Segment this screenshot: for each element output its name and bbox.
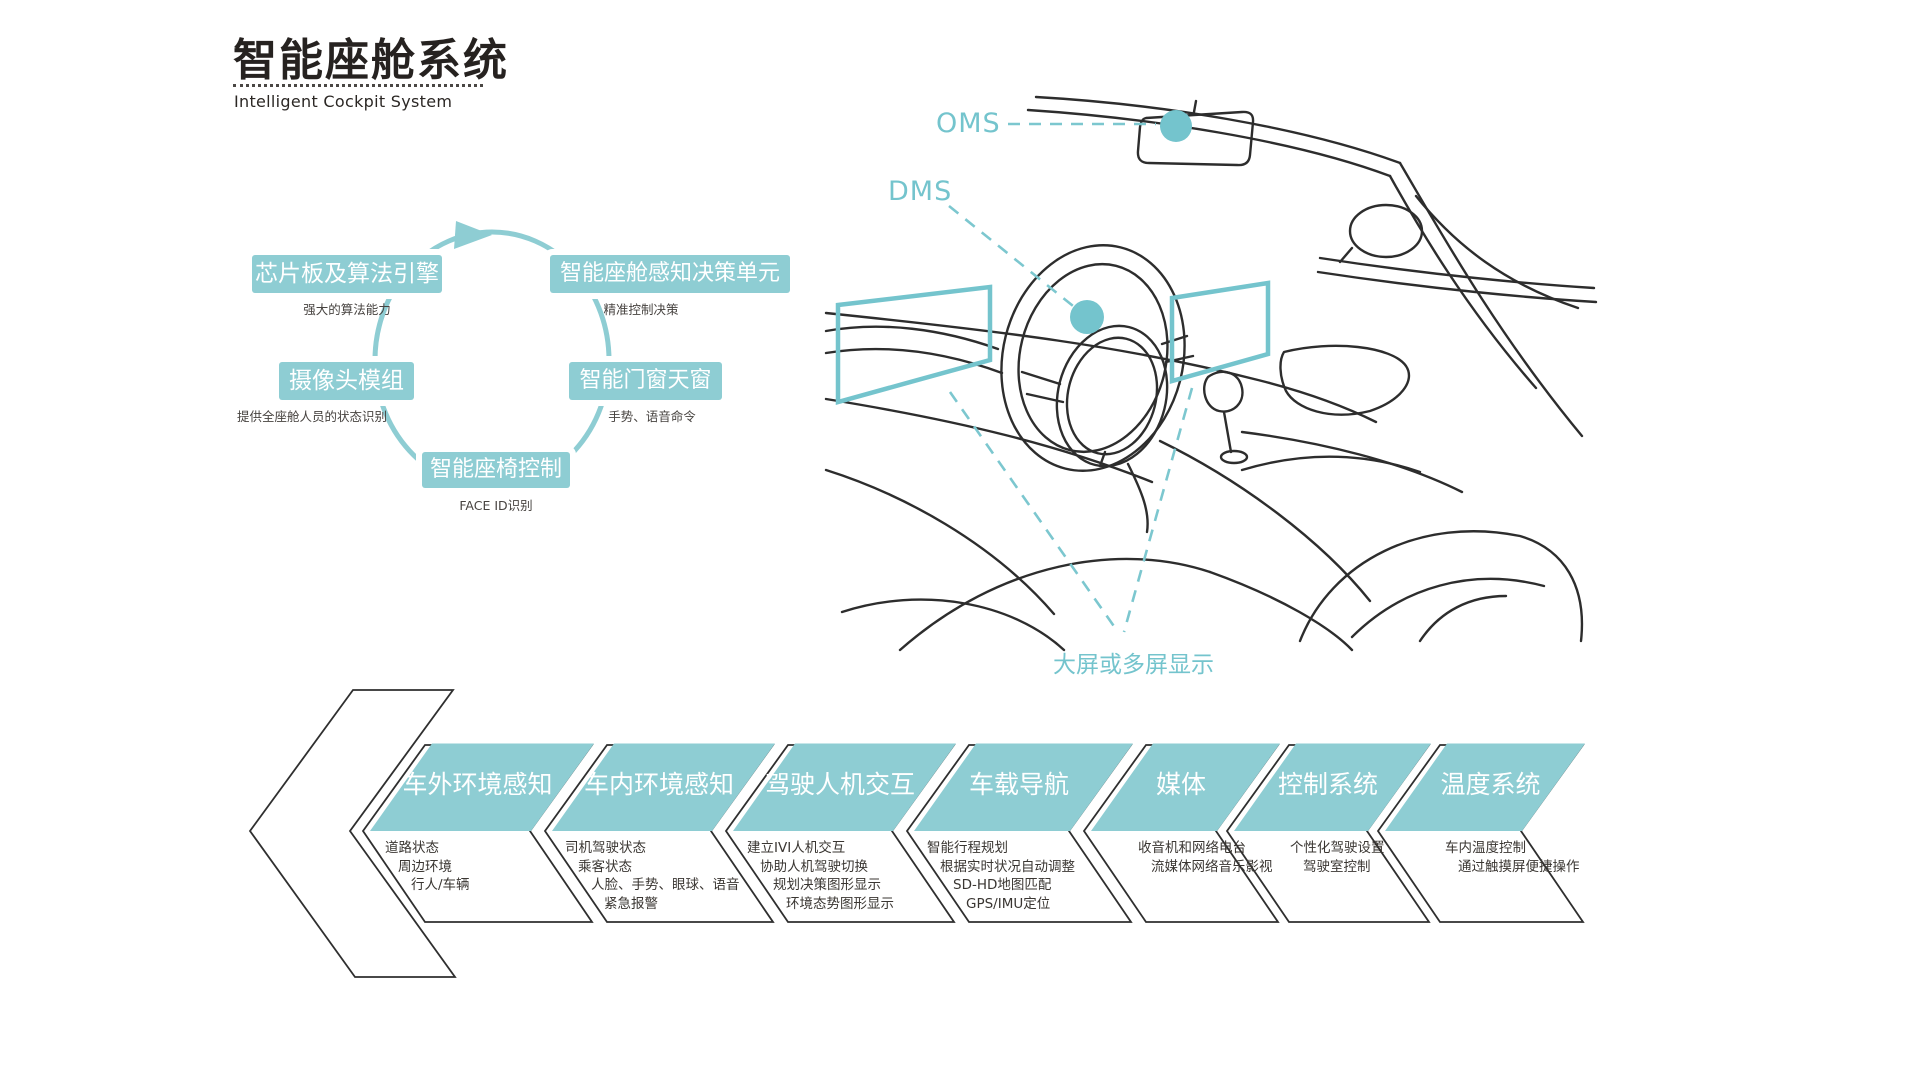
cycle-node-camera-module: 摄像头模组	[279, 362, 414, 400]
cycle-node-decision-unit: 智能座舱感知决策单元	[550, 255, 790, 293]
flow-step-title-media: 媒体	[1115, 769, 1247, 801]
flow-item: 驾驶室控制	[1290, 858, 1385, 877]
flow-item: 人脸、手势、眼球、语音	[565, 876, 740, 895]
flow-item: 道路状态	[385, 839, 470, 858]
flow-step-items-exterior: 道路状态 周边环境 行人/车辆	[385, 839, 470, 895]
flow-item: 司机驾驶状态	[565, 839, 740, 858]
flow-item: 乘客状态	[565, 858, 740, 877]
gear-shifter	[1204, 372, 1247, 463]
screen-outline-center	[1172, 283, 1268, 381]
flow-item: 紧急报警	[565, 895, 740, 914]
flow-step-items-navigation: 智能行程规划 根据实时状况自动调整 SD-HD地图匹配 GPS/IMU定位	[927, 839, 1075, 913]
page-subtitle-en: Intelligent Cockpit System	[234, 92, 452, 111]
flow-step-items-media: 收音机和网络电台 流媒体网络音乐影视	[1138, 839, 1273, 876]
cycle-node-seat-control-note: FACE ID识别	[459, 495, 532, 514]
flow-step-title-interior: 车内环境感知	[576, 769, 742, 801]
flow-step-title-hmi: 驾驶人机交互	[757, 769, 923, 801]
flow-item: 建立IVI人机交互	[747, 839, 894, 858]
page-title: 智能座舱系统	[233, 24, 509, 88]
cycle-node-decision-unit-note: 精准控制决策	[603, 299, 678, 318]
flow-item: 环境态势图形显示	[747, 895, 894, 914]
flow-item: SD-HD地图匹配	[927, 876, 1075, 895]
flow-item: 通过触摸屏便捷操作	[1445, 858, 1580, 877]
screen-outline-cluster	[838, 287, 990, 402]
flow-item: GPS/IMU定位	[927, 895, 1075, 914]
cycle-node-smart-windows-note: 手势、语音命令	[608, 406, 696, 425]
flow-item: 根据实时状况自动调整	[927, 858, 1075, 877]
dms-dot	[1070, 300, 1104, 334]
cycle-node-chip-engine: 芯片板及算法引擎	[252, 255, 442, 293]
display-leader-line-left	[950, 392, 1118, 632]
flow-item: 智能行程规划	[927, 839, 1075, 858]
oms-dot	[1160, 110, 1192, 142]
flow-step-title-navigation: 车载导航	[938, 769, 1100, 801]
flow-item: 收音机和网络电台	[1138, 839, 1273, 858]
flow-step-title-exterior: 车外环境感知	[394, 769, 561, 801]
flow-step-title-control: 控制系统	[1258, 769, 1398, 801]
flow-item: 流媒体网络音乐影视	[1138, 858, 1273, 877]
flow-step-items-temperature: 车内温度控制 通过触摸屏便捷操作	[1445, 839, 1580, 876]
oms-label: OMS	[936, 108, 1001, 139]
flow-item: 行人/车辆	[385, 876, 470, 895]
flow-chevrons	[250, 690, 1583, 977]
cycle-arrow-icon	[454, 221, 492, 249]
flow-item: 个性化驾驶设置	[1290, 839, 1385, 858]
dms-label: DMS	[888, 176, 952, 207]
flow-step-items-interior: 司机驾驶状态 乘客状态 人脸、手势、眼球、语音 紧急报警	[565, 839, 740, 913]
cycle-node-smart-windows: 智能门窗天窗	[569, 362, 722, 400]
cycle-node-camera-module-note: 提供全座舱人员的状态识别	[237, 406, 387, 425]
cycle-node-chip-engine-note: 强大的算法能力	[303, 299, 391, 318]
cycle-node-seat-control: 智能座椅控制	[422, 452, 570, 488]
flow-item: 规划决策图形显示	[747, 876, 894, 895]
flow-item: 车内温度控制	[1445, 839, 1580, 858]
infographic-page: 智能座舱系统 Intelligent Cockpit System 芯片板及算法…	[0, 0, 1920, 1080]
diagram-artwork	[0, 0, 1920, 1080]
flow-item: 协助人机驾驶切换	[747, 858, 894, 877]
display-label: 大屏或多屏显示	[1053, 645, 1214, 679]
flow-step-items-control: 个性化驾驶设置 驾驶室控制	[1290, 839, 1385, 876]
flow-step-items-hmi: 建立IVI人机交互 协助人机驾驶切换 规划决策图形显示 环境态势图形显示	[747, 839, 894, 913]
side-mirror	[1350, 205, 1422, 257]
flow-step-title-temperature: 温度系统	[1419, 769, 1562, 801]
title-underline	[233, 84, 483, 87]
flow-item: 周边环境	[385, 858, 470, 877]
rearview-mirror	[1138, 101, 1253, 165]
